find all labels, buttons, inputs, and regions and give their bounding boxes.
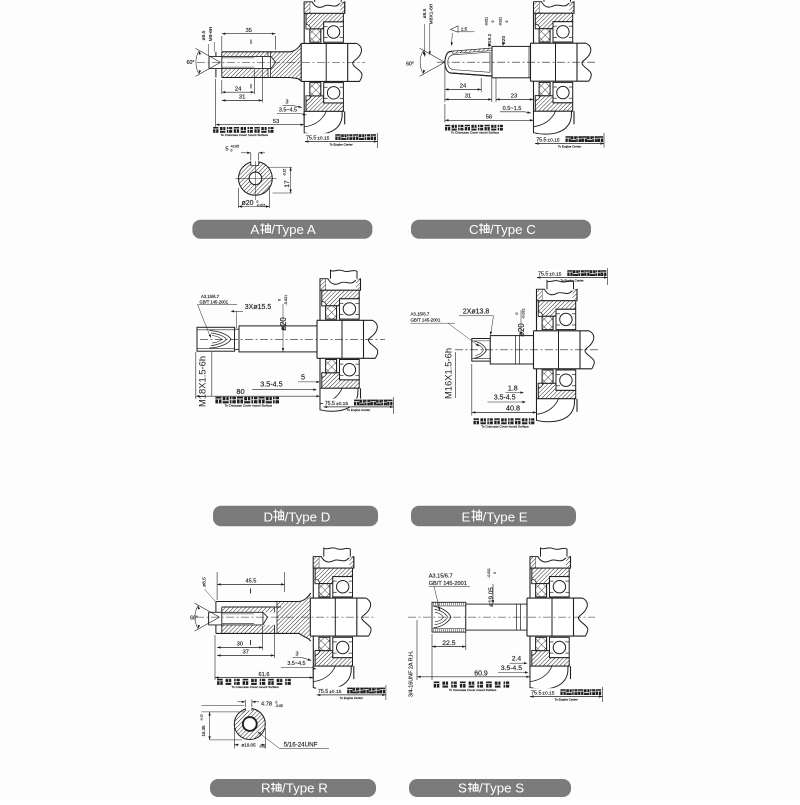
svg-text:30: 30 (237, 642, 243, 648)
svg-text:M16X1.5-6h: M16X1.5-6h (443, 348, 454, 399)
svg-text:A: A (250, 222, 259, 237)
svg-text:ø19.05: ø19.05 (241, 743, 256, 748)
svg-text:-0.021: -0.021 (284, 295, 288, 306)
svg-text:75.5: 75.5 (536, 137, 546, 143)
svg-text:To Crancase Cover mount Surfac: To Crancase Cover mount Surface (231, 685, 279, 689)
svg-text:To Engine Center: To Engine Center (561, 279, 584, 283)
svg-text:2Xø13.8: 2Xø13.8 (463, 308, 490, 315)
svg-text:-0.15: -0.15 (283, 169, 287, 176)
svg-text:0: 0 (493, 572, 497, 574)
svg-text:M18X1.5-6h: M18X1.5-6h (197, 356, 208, 407)
svg-text:ø20: ø20 (517, 323, 526, 337)
svg-text:±0.15: ±0.15 (317, 135, 329, 141)
svg-text:23: 23 (511, 94, 517, 100)
svg-text:3Xø15.5: 3Xø15.5 (245, 304, 272, 311)
svg-text:75.5: 75.5 (306, 135, 316, 141)
svg-text:3.5-4.5: 3.5-4.5 (501, 665, 522, 672)
svg-text:R: R (261, 780, 271, 795)
svg-text:A3.15/6.7: A3.15/6.7 (201, 294, 220, 299)
svg-text:24: 24 (460, 84, 467, 90)
svg-text:/Type A: /Type A (271, 222, 315, 237)
svg-text:To Crancase Cover mount Surfac: To Crancase Cover mount Surface (225, 404, 273, 408)
svg-text:0: 0 (491, 20, 495, 22)
svg-text:/Type S: /Type S (479, 780, 524, 795)
svg-text:80: 80 (236, 387, 244, 396)
svg-text:ø8.5: ø8.5 (422, 8, 428, 18)
svg-text:17: 17 (284, 180, 291, 188)
svg-text:3.5~4.5: 3.5~4.5 (287, 661, 305, 667)
svg-text:-0.021: -0.021 (499, 17, 503, 26)
svg-text:To Crancase Cover mount Surfac: To Crancase Cover mount Surface (481, 425, 529, 429)
svg-text:/Type D: /Type D (285, 510, 331, 525)
svg-text:ø20: ø20 (241, 200, 253, 207)
svg-text:To Chancase Cover mount Surfac: To Chancase Cover mount Surface (451, 131, 499, 135)
svg-text:45.5: 45.5 (245, 579, 256, 585)
svg-text:1.8: 1.8 (508, 385, 518, 392)
svg-text:-0.021: -0.021 (257, 204, 266, 208)
svg-text:M8X1-6H: M8X1-6H (428, 3, 434, 24)
svg-text:ø8.5: ø8.5 (201, 577, 207, 587)
svg-text:-0.15: -0.15 (200, 714, 204, 721)
svg-text:0.5~1.5: 0.5~1.5 (503, 106, 522, 112)
svg-text:0: 0 (505, 20, 509, 22)
svg-text:-0.01: -0.01 (259, 745, 266, 749)
svg-text:D: D (264, 510, 274, 525)
svg-text:75.5: 75.5 (538, 271, 548, 277)
svg-text:S: S (458, 780, 467, 795)
svg-text:75.5: 75.5 (318, 689, 328, 695)
svg-text:3.5-4.5: 3.5-4.5 (260, 380, 282, 389)
svg-text:M8-6H: M8-6H (208, 26, 214, 41)
svg-text:-0.021: -0.021 (485, 17, 489, 26)
svg-text:3/4-16UNF 2A R.H.: 3/4-16UNF 2A R.H. (409, 651, 415, 697)
svg-text:0: 0 (277, 299, 281, 301)
svg-text:53: 53 (273, 119, 279, 125)
svg-text:16.35: 16.35 (201, 725, 206, 737)
svg-text:-0.05: -0.05 (276, 704, 283, 708)
svg-text:75.5: 75.5 (531, 690, 541, 696)
svg-text:35: 35 (246, 28, 252, 34)
svg-text:56: 56 (486, 115, 492, 121)
svg-text:/Type C: /Type C (490, 222, 536, 237)
svg-text:60.9: 60.9 (474, 670, 488, 677)
svg-text:/Type R: /Type R (282, 780, 328, 795)
svg-text:60°: 60° (406, 62, 414, 68)
svg-text:3.5-4.5: 3.5-4.5 (494, 394, 516, 401)
svg-text:±0.15: ±0.15 (547, 137, 559, 143)
svg-text:ø19.05: ø19.05 (488, 587, 495, 607)
svg-text:To Engine Center: To Engine Center (330, 143, 353, 147)
svg-text:5: 5 (301, 373, 305, 382)
svg-text:To Engine Center: To Engine Center (347, 408, 370, 412)
svg-text:±0.15: ±0.15 (336, 401, 348, 407)
svg-text:0: 0 (231, 149, 233, 153)
svg-text:C: C (469, 222, 479, 237)
svg-text:E: E (462, 510, 471, 525)
svg-text:GB/T 145-2001: GB/T 145-2001 (200, 299, 229, 304)
svg-text:3: 3 (286, 100, 289, 106)
svg-text:±0.15: ±0.15 (542, 690, 554, 696)
svg-text:37: 37 (243, 650, 249, 656)
svg-text:24: 24 (235, 87, 242, 93)
svg-text:2.4: 2.4 (512, 656, 522, 663)
svg-text:4.78: 4.78 (261, 701, 272, 707)
svg-text:5/16-24UNF: 5/16-24UNF (284, 741, 318, 748)
svg-text:To Engine Center: To Engine Center (340, 696, 363, 700)
svg-text:31: 31 (465, 94, 471, 100)
svg-text:-0.021: -0.021 (487, 568, 491, 578)
svg-text:/Type E: /Type E (483, 510, 528, 525)
svg-text:To Crancase Cover mount Surfac: To Crancase Cover mount Surface (449, 688, 497, 692)
svg-text:ø8.5: ø8.5 (201, 30, 207, 40)
svg-text:0: 0 (515, 312, 519, 314)
svg-text:A3.15/6.7: A3.15/6.7 (411, 312, 430, 317)
svg-text:22.5: 22.5 (442, 640, 455, 647)
svg-text:61.6: 61.6 (259, 672, 270, 678)
svg-text:±0.15: ±0.15 (549, 271, 561, 277)
svg-text:To Engine Center: To Engine Center (555, 698, 578, 702)
svg-text:To Engine Center: To Engine Center (558, 145, 581, 149)
svg-text:To Crancase Cover mount Surfac: To Crancase Cover mount Surface (221, 133, 269, 137)
svg-text:GB/T 145-2001: GB/T 145-2001 (411, 318, 441, 323)
svg-text:-0.021: -0.021 (522, 308, 526, 319)
svg-text:60°: 60° (190, 616, 198, 622)
svg-text:60°: 60° (187, 60, 195, 66)
svg-text:3.5~4.5: 3.5~4.5 (279, 108, 297, 114)
svg-text:75.5: 75.5 (325, 401, 335, 407)
svg-text:±0.15: ±0.15 (329, 689, 341, 695)
svg-text:3: 3 (296, 652, 299, 658)
svg-text:1:5: 1:5 (461, 27, 468, 32)
svg-text:5: 5 (225, 147, 228, 153)
svg-text:31: 31 (239, 95, 245, 101)
svg-text:A3.15/6.7: A3.15/6.7 (429, 574, 453, 580)
svg-text:40.8: 40.8 (506, 403, 520, 412)
